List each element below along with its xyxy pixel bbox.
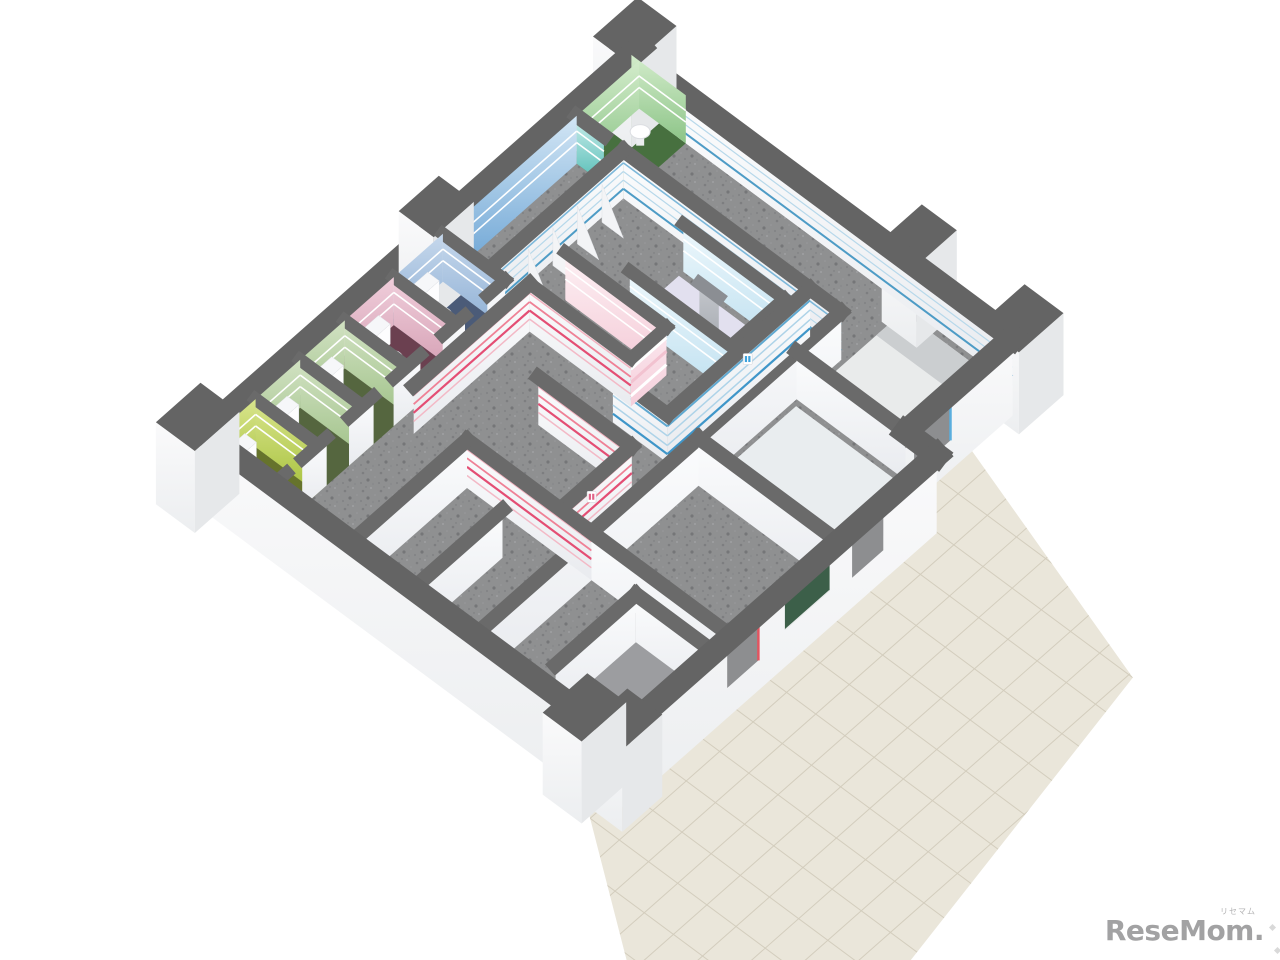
watermark-logo: リセマム ReseMom. [1105,908,1264,945]
isometric-floorplan [0,0,1280,960]
boys-restroom-sign [743,354,752,365]
floorplan-3d-render [0,0,1280,960]
watermark-text: ReseMom. [1105,917,1264,945]
girls-restroom-sign [587,491,596,502]
